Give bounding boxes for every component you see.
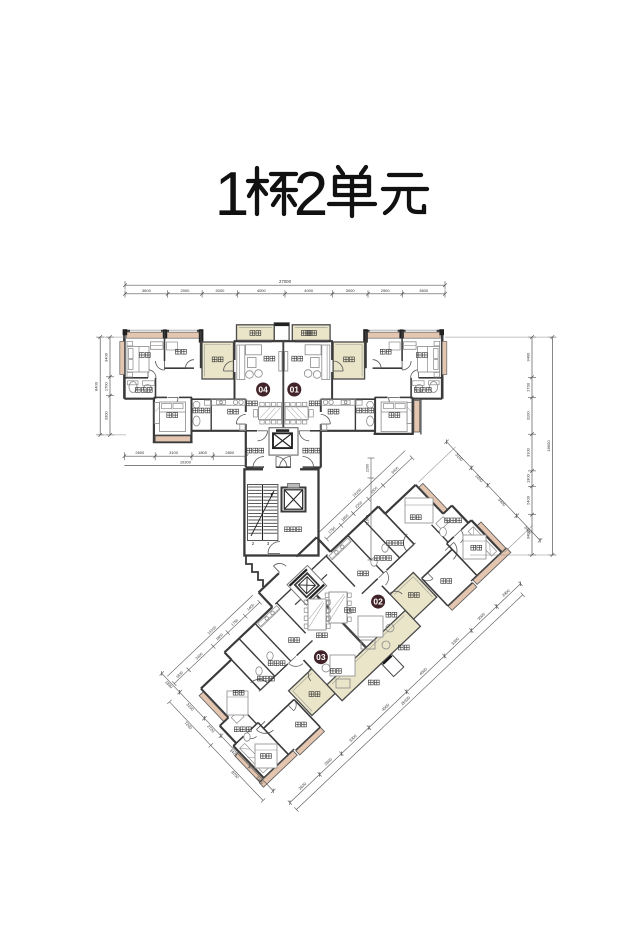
svg-text:1700: 1700 <box>104 381 109 391</box>
svg-text:2400: 2400 <box>526 495 531 505</box>
svg-text:3100: 3100 <box>526 411 531 421</box>
svg-text:3600: 3600 <box>142 288 152 293</box>
svg-text:04: 04 <box>258 385 268 395</box>
svg-text:01: 01 <box>290 385 300 395</box>
svg-text:3100: 3100 <box>169 450 179 455</box>
svg-text:3600: 3600 <box>419 288 429 293</box>
svg-text:4000: 4000 <box>257 288 267 293</box>
svg-text:3100: 3100 <box>526 447 531 457</box>
svg-text:4000: 4000 <box>304 288 314 293</box>
svg-text:3400: 3400 <box>526 352 531 362</box>
svg-text:27000: 27000 <box>279 279 292 284</box>
svg-text:1700: 1700 <box>526 382 531 392</box>
svg-text:8400: 8400 <box>94 381 99 391</box>
svg-text:2900: 2900 <box>180 288 190 293</box>
svg-text:2900: 2900 <box>381 288 391 293</box>
svg-text:1800: 1800 <box>198 450 208 455</box>
svg-text:03: 03 <box>316 652 326 662</box>
svg-text:3400: 3400 <box>526 530 531 540</box>
svg-text:1300: 1300 <box>526 473 531 483</box>
svg-text:18600: 18600 <box>546 440 551 452</box>
svg-text:2200: 2200 <box>366 464 370 472</box>
svg-text:10300: 10300 <box>180 460 192 465</box>
svg-text:2600: 2600 <box>135 450 145 455</box>
svg-text:2: 2 <box>294 160 328 229</box>
svg-text:2800: 2800 <box>225 450 235 455</box>
svg-text:02: 02 <box>373 597 383 607</box>
svg-text:3000: 3000 <box>346 288 356 293</box>
svg-text:1: 1 <box>215 160 249 229</box>
svg-text:3000: 3000 <box>215 288 225 293</box>
svg-text:11970: 11970 <box>366 515 370 525</box>
svg-text:3400: 3400 <box>104 352 109 362</box>
svg-text:3300: 3300 <box>104 411 109 421</box>
